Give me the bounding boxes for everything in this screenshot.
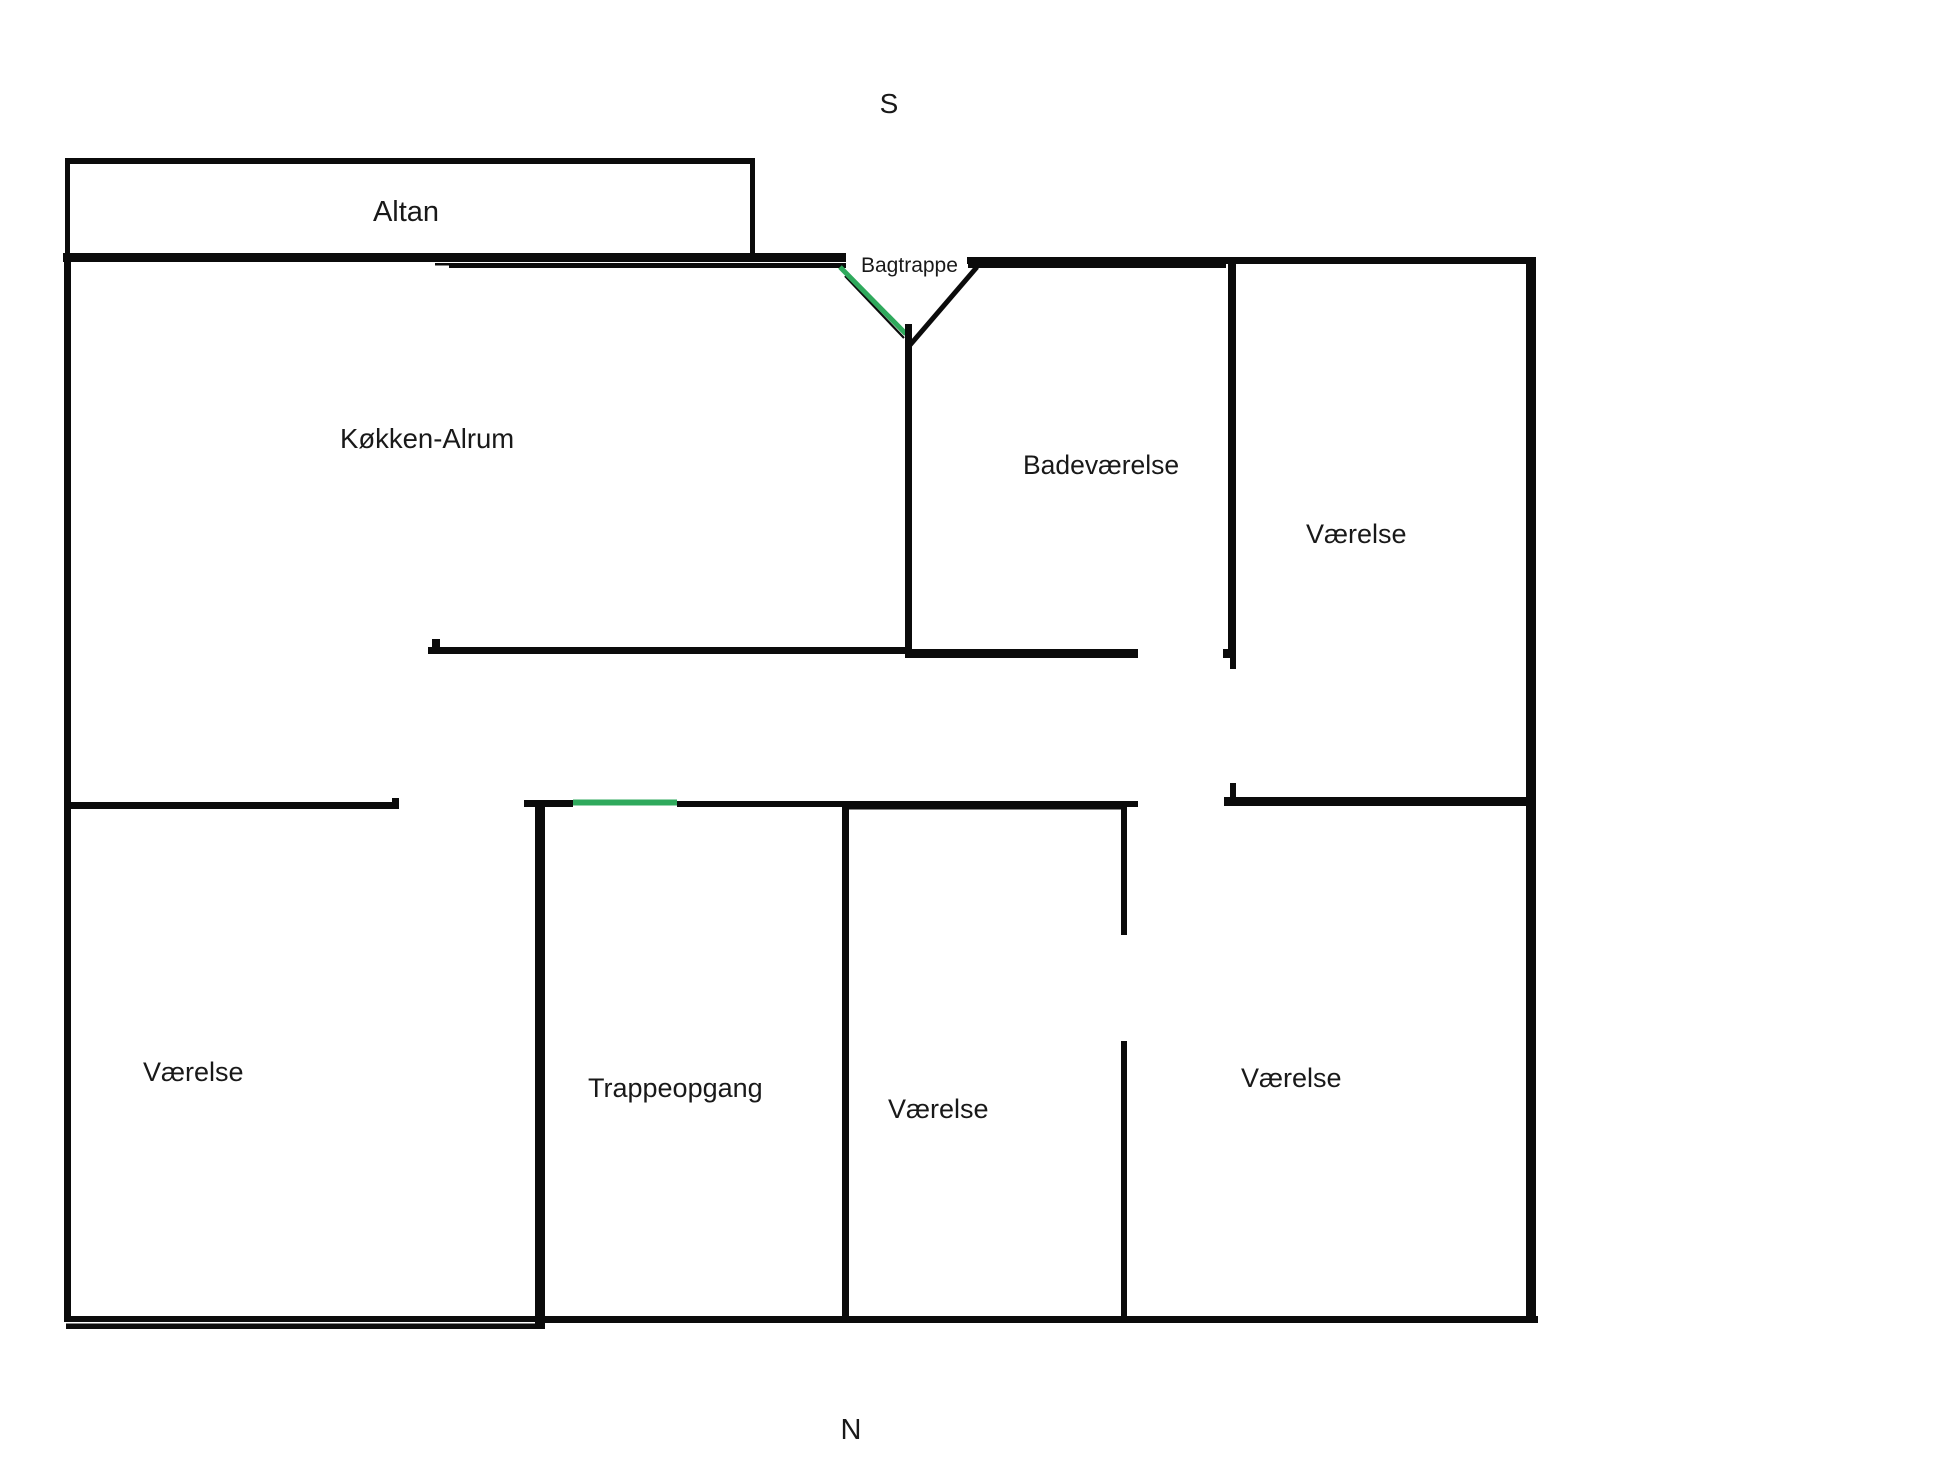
svg-text:S: S [880, 88, 899, 119]
svg-text:Trappeopgang: Trappeopgang [588, 1073, 763, 1103]
svg-text:Badeværelse: Badeværelse [1023, 450, 1179, 480]
svg-text:N: N [841, 1414, 862, 1446]
svg-text:Værelse: Værelse [143, 1057, 244, 1087]
svg-text:Altan: Altan [373, 196, 439, 228]
svg-text:Bagtrappe: Bagtrappe [861, 254, 958, 277]
svg-text:Køkken-Alrum: Køkken-Alrum [340, 423, 514, 454]
svg-text:Værelse: Værelse [1241, 1063, 1342, 1093]
svg-text:Værelse: Værelse [888, 1094, 989, 1124]
svg-text:Værelse: Værelse [1306, 519, 1407, 549]
